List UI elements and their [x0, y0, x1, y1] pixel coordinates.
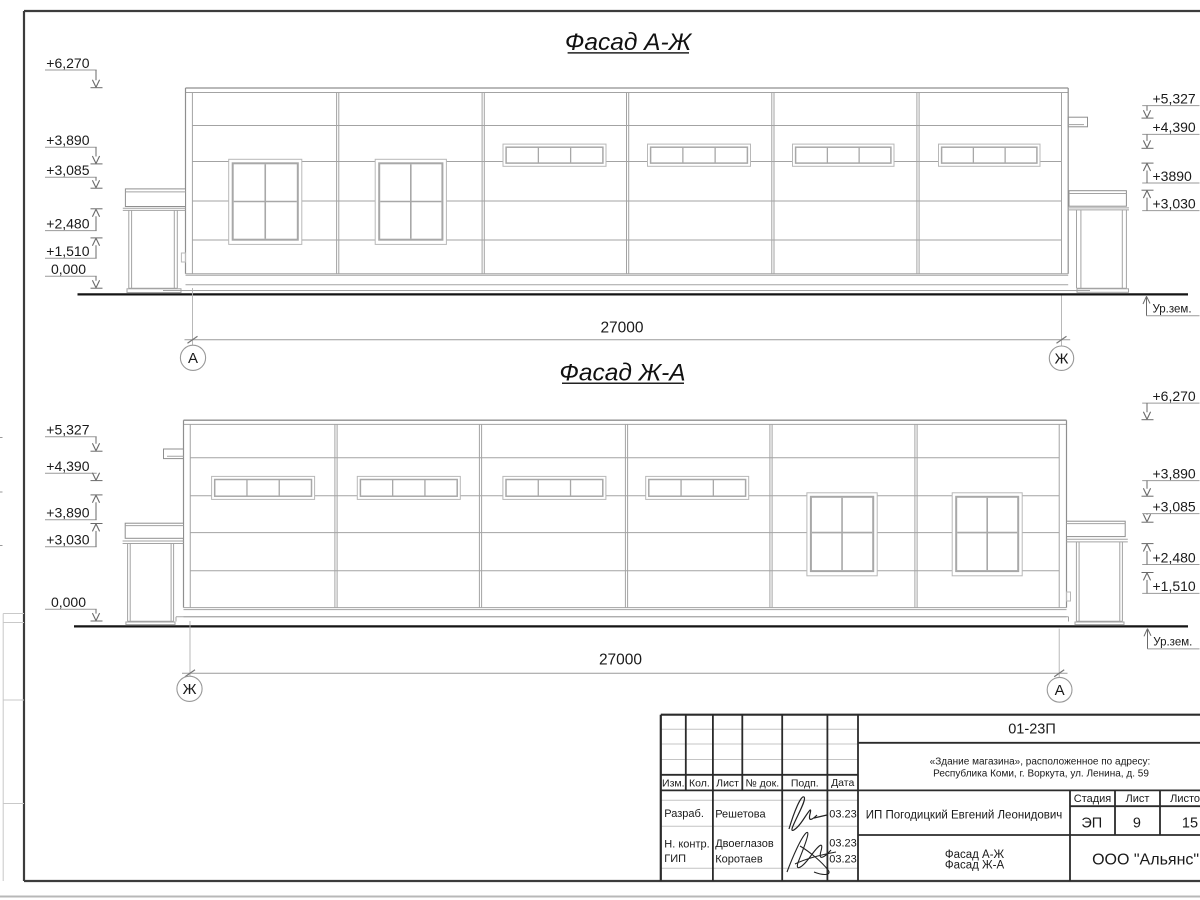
svg-text:+3,890: +3,890: [1153, 465, 1196, 481]
svg-text:9: 9: [1133, 815, 1141, 831]
svg-text:Разраб.: Разраб.: [664, 808, 704, 820]
svg-text:Листов: Листов: [1170, 793, 1200, 805]
svg-text:+4,390: +4,390: [1153, 119, 1196, 135]
svg-text:Республика Коми, г. Воркута, у: Республика Коми, г. Воркута, ул. Ленина,…: [933, 767, 1149, 779]
svg-text:«Здание магазина», расположенн: «Здание магазина», расположенное по адре…: [930, 756, 1151, 767]
svg-text:ИП Погодицкий Евгений Леонидов: ИП Погодицкий Евгений Леонидович: [866, 809, 1063, 821]
svg-text:+5,327: +5,327: [46, 422, 89, 438]
svg-text:ООО "Альянс": ООО "Альянс": [1092, 852, 1199, 869]
svg-text:+3,890: +3,890: [46, 505, 89, 521]
svg-text:Двоеглазов: Двоеглазов: [715, 838, 774, 850]
svg-text:№ док.: № док.: [745, 777, 779, 789]
svg-text:Изм.: Изм.: [662, 777, 685, 789]
svg-text:+3,890: +3,890: [46, 132, 89, 148]
svg-text:27000: 27000: [600, 320, 643, 337]
svg-text:Кол.: Кол.: [689, 777, 710, 789]
svg-text:03.23: 03.23: [829, 853, 857, 865]
svg-text:+5,327: +5,327: [1153, 90, 1196, 106]
svg-text:+3890: +3890: [1153, 168, 1193, 184]
svg-text:А: А: [1055, 682, 1065, 699]
svg-text:15: 15: [1182, 815, 1198, 831]
svg-text:+1,510: +1,510: [46, 243, 89, 259]
svg-text:03.23: 03.23: [829, 808, 857, 820]
svg-text:Ур.зем.: Ур.зем.: [1153, 303, 1192, 315]
svg-text:+3,085: +3,085: [46, 162, 89, 178]
svg-text:Н. контр.: Н. контр.: [664, 839, 709, 851]
svg-text:ГИП: ГИП: [664, 853, 686, 865]
svg-text:27000: 27000: [599, 652, 642, 669]
svg-text:Дата: Дата: [831, 777, 854, 789]
svg-text:Лист: Лист: [1126, 793, 1150, 805]
svg-text:Подп.: Подп.: [791, 777, 819, 789]
svg-text:+6,270: +6,270: [46, 55, 89, 71]
svg-text:0,000: 0,000: [51, 261, 86, 277]
svg-text:Коротаев: Коротаев: [715, 853, 763, 865]
svg-text:Ж: Ж: [1055, 351, 1069, 368]
svg-text:Ж: Ж: [183, 681, 197, 698]
svg-text:Фасад А-Ж: Фасад А-Ж: [565, 29, 693, 56]
svg-text:+3,030: +3,030: [46, 532, 89, 548]
svg-text:А: А: [188, 350, 198, 367]
svg-text:0,000: 0,000: [51, 594, 86, 610]
svg-text:+1,510: +1,510: [1153, 578, 1196, 594]
svg-text:+6,270: +6,270: [1153, 388, 1196, 404]
svg-text:+2,480: +2,480: [46, 215, 89, 231]
svg-text:03.23: 03.23: [829, 838, 857, 850]
svg-text:01-23П: 01-23П: [1008, 722, 1056, 738]
svg-text:Стадия: Стадия: [1074, 793, 1112, 805]
svg-text:Ур.зем.: Ур.зем.: [1153, 636, 1192, 648]
svg-text:Лист: Лист: [716, 777, 739, 789]
svg-text:Решетова: Решетова: [715, 808, 766, 820]
svg-text:+2,480: +2,480: [1153, 549, 1196, 565]
svg-text:+3,085: +3,085: [1153, 498, 1196, 514]
svg-text:Фасад Ж-А: Фасад Ж-А: [945, 859, 1005, 871]
svg-text:+4,390: +4,390: [46, 458, 89, 474]
svg-text:Фасад Ж-А: Фасад Ж-А: [559, 360, 685, 387]
svg-text:+3,030: +3,030: [1153, 195, 1196, 211]
svg-text:ЭП: ЭП: [1081, 815, 1102, 831]
